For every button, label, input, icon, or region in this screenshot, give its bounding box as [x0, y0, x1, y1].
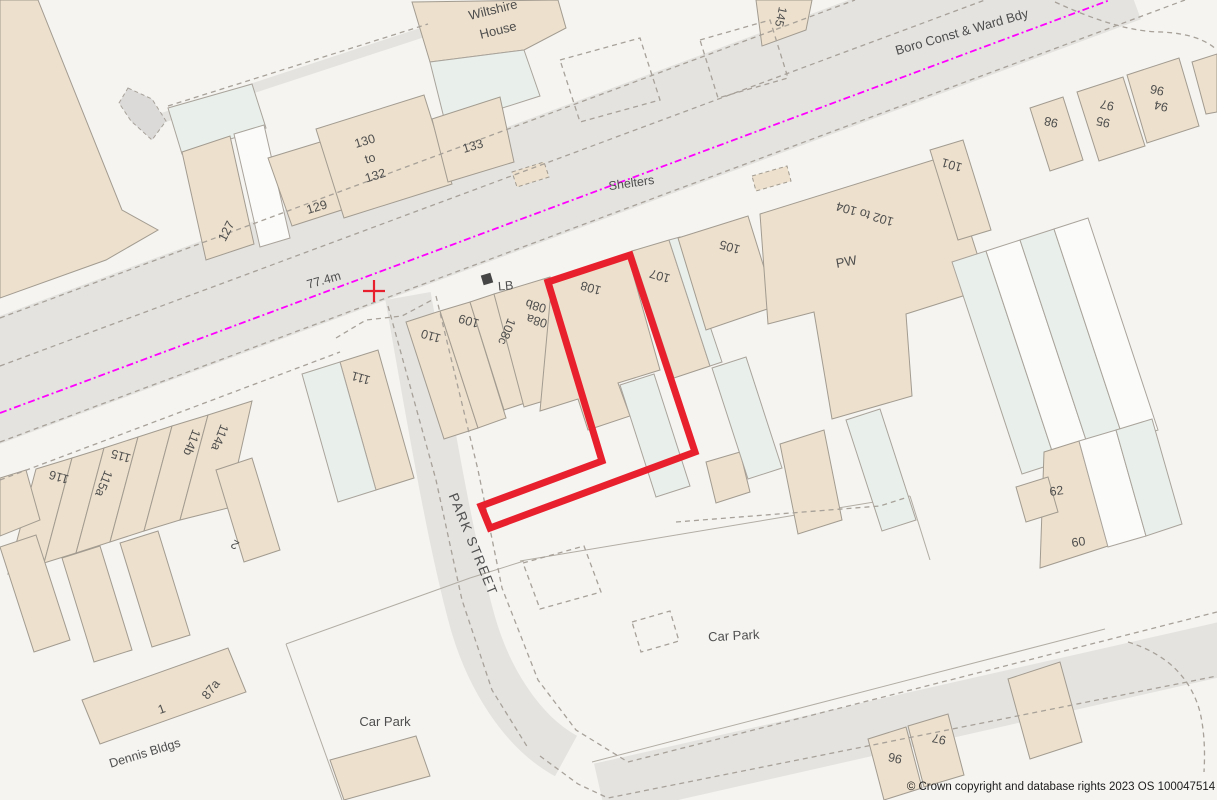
map-label-no-94: 94	[1153, 98, 1170, 115]
map-canvas: WiltshireHouse145Boro Const & Ward BdySh…	[0, 0, 1217, 800]
letter-box-marker	[481, 273, 493, 285]
map-label-no-97: 97	[1099, 97, 1116, 114]
map-label-no-96: 96	[1149, 82, 1166, 99]
copyright-text: © Crown copyright and database rights 20…	[907, 781, 1216, 793]
map-label-lb: LB	[497, 278, 513, 293]
site-plan-map: WiltshireHouse145Boro Const & Ward BdySh…	[0, 0, 1217, 800]
map-label-dennis-bldgs: Dennis Bldgs	[108, 736, 183, 771]
map-label-no-98: 98	[1043, 114, 1060, 131]
map-label-no-60: 60	[1071, 534, 1087, 550]
map-label-car-park-west: Car Park	[359, 714, 411, 729]
map-label-no-96-south: 96	[887, 750, 904, 767]
map-label-no-97-south: 97	[931, 731, 948, 748]
road-splay	[119, 88, 166, 140]
map-label-no-95: 95	[1095, 114, 1112, 131]
map-label-car-park-east: Car Park	[708, 627, 761, 645]
map-label-no-62: 62	[1049, 483, 1065, 499]
